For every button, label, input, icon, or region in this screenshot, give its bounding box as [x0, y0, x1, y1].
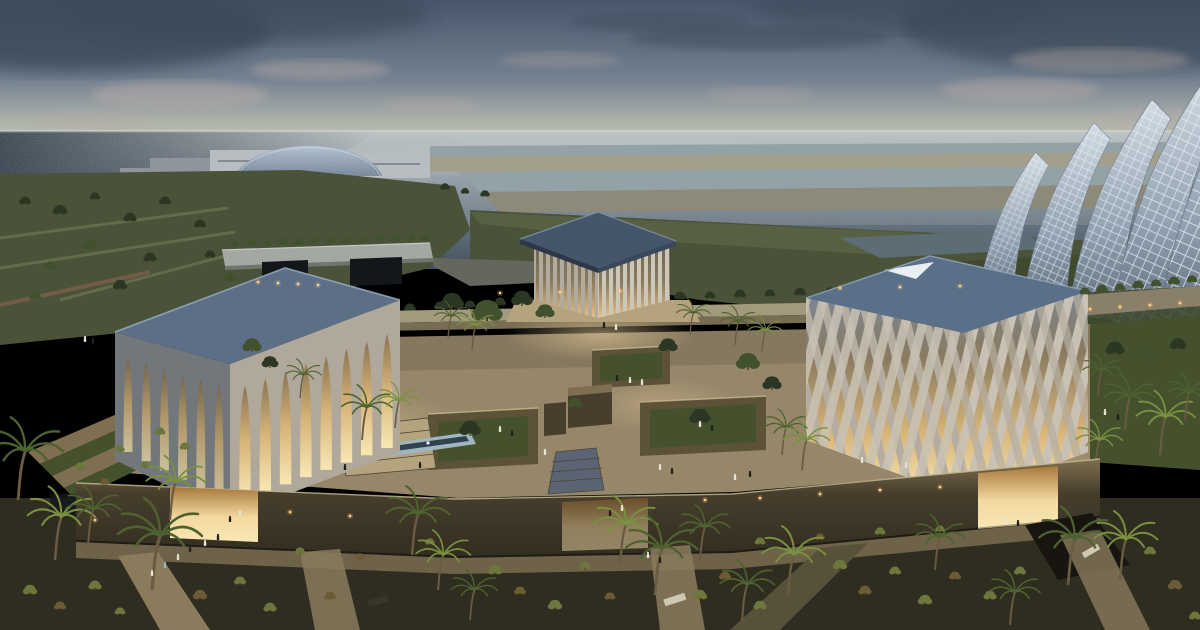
person-figure	[615, 324, 617, 330]
street-light	[1147, 302, 1153, 308]
person-figure	[621, 505, 623, 511]
person-figure	[629, 377, 631, 383]
person-figure	[671, 468, 673, 474]
street-light	[1087, 306, 1093, 312]
person-figure	[84, 336, 86, 342]
person-figure	[1117, 414, 1119, 420]
street-light	[837, 285, 843, 291]
street-light	[1177, 300, 1183, 306]
person-figure	[1004, 517, 1006, 523]
person-figure	[229, 516, 231, 522]
person-figure	[344, 464, 346, 470]
person-figure	[616, 375, 618, 381]
street-light	[255, 279, 261, 285]
street-light	[1117, 304, 1123, 310]
person-figure	[749, 471, 751, 477]
person-figure	[544, 449, 546, 455]
person-figure	[177, 554, 179, 560]
underpass-opening	[350, 257, 402, 286]
street-light	[897, 284, 903, 290]
street-light	[497, 290, 503, 296]
person-figure	[861, 457, 863, 463]
person-figure	[905, 462, 907, 468]
scene-canvas	[0, 0, 1200, 630]
street-light	[817, 491, 823, 497]
street-light	[347, 513, 353, 519]
person-figure	[204, 540, 206, 546]
street-light	[877, 487, 883, 493]
tree	[511, 291, 533, 306]
street-light	[617, 288, 623, 294]
person-figure	[189, 546, 191, 552]
person-figure	[647, 552, 649, 558]
person-figure	[1104, 409, 1106, 415]
person-figure	[499, 426, 501, 432]
person-figure	[1017, 520, 1019, 526]
person-figure	[419, 462, 421, 468]
person-figure	[641, 379, 643, 385]
street-light	[757, 495, 763, 501]
street-light	[287, 509, 293, 515]
tree	[465, 300, 476, 308]
street-light	[315, 282, 321, 288]
architectural-rendering	[0, 0, 1200, 630]
sky	[0, 0, 1200, 142]
street-light	[937, 484, 943, 490]
person-figure	[711, 425, 713, 431]
street-light	[702, 497, 708, 503]
person-figure	[603, 322, 605, 328]
street-light	[275, 280, 281, 286]
street-light	[92, 517, 98, 523]
tree	[440, 293, 464, 310]
person-figure	[239, 510, 241, 516]
person-figure	[92, 338, 94, 344]
person-figure	[1029, 514, 1031, 520]
street-light	[557, 289, 563, 295]
person-figure	[609, 510, 611, 516]
person-figure	[511, 430, 513, 436]
person-figure	[164, 562, 166, 568]
person-figure	[151, 570, 153, 576]
person-figure	[734, 474, 736, 480]
street-light	[957, 283, 963, 289]
person-figure	[699, 421, 701, 427]
person-figure	[217, 534, 219, 540]
street-light	[295, 281, 301, 287]
person-figure	[659, 557, 661, 563]
person-figure	[659, 464, 661, 470]
